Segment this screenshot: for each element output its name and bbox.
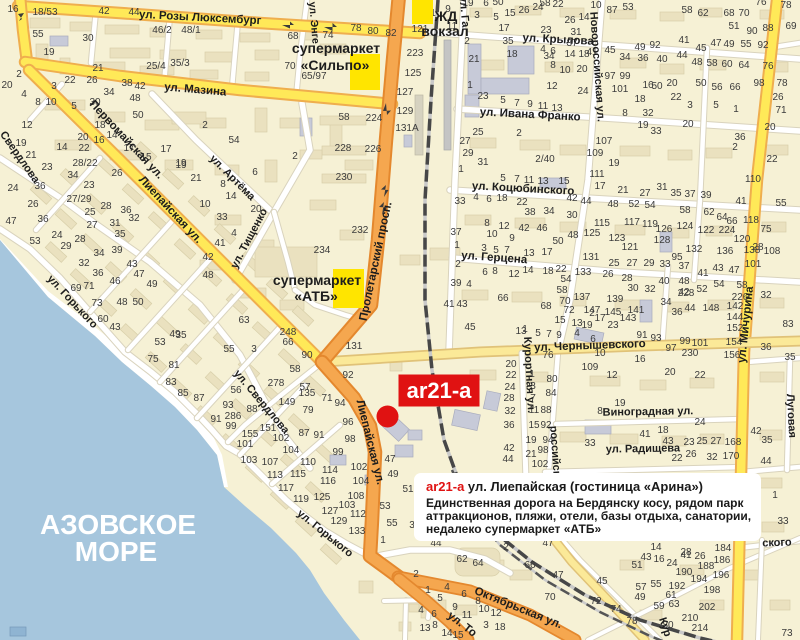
svg-text:85: 85 (177, 388, 189, 399)
svg-text:102: 102 (351, 462, 368, 473)
svg-text:15: 15 (528, 420, 540, 431)
svg-text:недалеко супермаркет «АТБ»: недалеко супермаркет «АТБ» (426, 522, 601, 536)
svg-text:88: 88 (540, 405, 552, 416)
svg-text:35: 35 (114, 229, 126, 240)
svg-text:17: 17 (160, 144, 172, 155)
svg-text:9: 9 (556, 330, 562, 341)
svg-text:62: 62 (456, 554, 468, 565)
svg-text:32: 32 (760, 290, 772, 301)
svg-text:9: 9 (509, 233, 515, 244)
svg-text:18: 18 (657, 425, 669, 436)
svg-text:15: 15 (504, 8, 516, 19)
svg-text:139: 139 (607, 294, 624, 305)
svg-text:19: 19 (608, 158, 620, 169)
svg-text:26: 26 (694, 551, 706, 562)
svg-text:126: 126 (656, 224, 673, 235)
svg-text:30: 30 (566, 210, 578, 221)
svg-text:58: 58 (539, 0, 551, 9)
svg-text:44: 44 (684, 303, 696, 314)
svg-text:103: 103 (241, 455, 258, 466)
svg-text:131А: 131А (395, 123, 419, 134)
svg-text:78: 78 (626, 616, 638, 627)
svg-text:31: 31 (109, 218, 121, 229)
svg-text:46: 46 (109, 276, 121, 287)
svg-text:7: 7 (546, 329, 552, 340)
svg-text:143: 143 (620, 313, 637, 324)
svg-text:99: 99 (225, 421, 237, 432)
svg-text:Луговая: Луговая (784, 393, 798, 438)
svg-text:58: 58 (556, 285, 568, 296)
svg-text:51: 51 (402, 484, 414, 495)
svg-text:25: 25 (608, 258, 620, 269)
svg-text:46: 46 (536, 223, 548, 234)
svg-text:13: 13 (515, 326, 527, 337)
svg-text:19: 19 (175, 158, 187, 169)
svg-text:104: 104 (283, 445, 300, 456)
svg-text:14: 14 (522, 265, 534, 276)
svg-text:23: 23 (683, 437, 695, 448)
svg-text:87: 87 (193, 393, 205, 404)
svg-text:13: 13 (419, 623, 431, 634)
svg-text:4: 4 (574, 328, 580, 339)
svg-text:108: 108 (764, 246, 781, 257)
svg-text:96: 96 (342, 417, 354, 428)
svg-text:19: 19 (581, 320, 593, 331)
svg-text:28: 28 (752, 242, 764, 253)
svg-text:16: 16 (653, 554, 665, 565)
svg-text:12: 12 (490, 608, 502, 619)
svg-text:38: 38 (121, 78, 133, 89)
svg-text:129: 129 (331, 516, 348, 527)
svg-text:28: 28 (74, 234, 86, 245)
svg-text:24: 24 (504, 382, 516, 393)
svg-text:98: 98 (344, 434, 356, 445)
svg-text:98: 98 (537, 445, 549, 456)
svg-text:8: 8 (432, 620, 438, 631)
svg-text:18: 18 (578, 49, 590, 60)
svg-text:27: 27 (86, 220, 98, 231)
svg-text:90: 90 (301, 350, 313, 361)
svg-text:43: 43 (456, 299, 468, 310)
svg-text:55: 55 (775, 198, 787, 209)
svg-text:32: 32 (706, 452, 718, 463)
svg-text:49: 49 (169, 329, 181, 340)
svg-text:ar21-a: ar21-a (407, 378, 473, 403)
svg-text:5: 5 (437, 593, 443, 604)
svg-text:25: 25 (696, 436, 708, 447)
svg-text:137: 137 (574, 292, 591, 303)
svg-text:41: 41 (697, 268, 709, 279)
svg-text:27: 27 (710, 436, 722, 447)
svg-text:70: 70 (284, 61, 296, 72)
svg-text:36: 36 (671, 307, 683, 318)
svg-text:34: 34 (543, 206, 555, 217)
svg-text:88: 88 (246, 404, 258, 415)
svg-text:10: 10 (559, 65, 571, 76)
svg-text:22: 22 (64, 75, 76, 86)
svg-text:21: 21 (468, 54, 480, 65)
svg-text:76: 76 (762, 61, 774, 72)
svg-text:36: 36 (34, 181, 46, 192)
svg-text:120: 120 (734, 234, 751, 245)
svg-text:83: 83 (782, 319, 794, 330)
svg-text:10: 10 (478, 604, 490, 615)
svg-text:22: 22 (670, 92, 682, 103)
svg-text:49: 49 (146, 279, 158, 290)
svg-text:14: 14 (56, 142, 68, 153)
svg-text:36: 36 (37, 214, 49, 225)
svg-text:80: 80 (546, 374, 558, 385)
svg-text:97: 97 (665, 343, 677, 354)
svg-text:75: 75 (760, 224, 772, 235)
svg-text:78: 78 (350, 23, 362, 34)
svg-text:27: 27 (639, 188, 651, 199)
svg-text:39: 39 (700, 190, 712, 201)
svg-text:8: 8 (484, 218, 490, 229)
svg-text:21: 21 (617, 185, 629, 196)
svg-text:3: 3 (51, 81, 57, 92)
svg-text:99: 99 (679, 336, 691, 347)
svg-text:186: 186 (714, 555, 731, 566)
svg-text:35: 35 (784, 352, 796, 363)
svg-text:84: 84 (545, 388, 557, 399)
svg-text:42: 42 (678, 287, 690, 298)
svg-text:8: 8 (492, 266, 498, 277)
svg-text:82: 82 (385, 28, 397, 39)
svg-text:74: 74 (610, 604, 622, 615)
svg-text:20: 20 (764, 122, 776, 133)
svg-text:31: 31 (656, 182, 668, 193)
svg-text:184: 184 (715, 543, 732, 554)
svg-text:131: 131 (346, 341, 363, 352)
svg-text:36: 36 (760, 342, 772, 353)
svg-text:136: 136 (717, 246, 734, 257)
svg-text:101: 101 (692, 338, 709, 349)
svg-text:22: 22 (671, 453, 683, 464)
svg-text:18/53: 18/53 (32, 7, 57, 18)
svg-text:115: 115 (290, 469, 306, 480)
svg-text:71: 71 (83, 281, 95, 292)
svg-text:ского: ского (762, 536, 792, 549)
svg-text:26: 26 (772, 92, 784, 103)
svg-text:6: 6 (483, 0, 489, 9)
svg-text:6: 6 (252, 167, 258, 178)
svg-text:30: 30 (627, 283, 639, 294)
svg-text:214: 214 (692, 623, 709, 634)
svg-text:26: 26 (518, 5, 530, 16)
svg-text:5: 5 (493, 12, 499, 23)
svg-text:25: 25 (84, 207, 96, 218)
svg-text:4: 4 (466, 279, 472, 290)
svg-text:МОРЕ: МОРЕ (75, 536, 157, 567)
svg-text:50: 50 (492, 0, 504, 8)
svg-text:45: 45 (695, 43, 707, 54)
svg-text:48: 48 (129, 93, 141, 104)
svg-text:48: 48 (691, 57, 703, 68)
svg-text:66: 66 (524, 560, 536, 571)
svg-text:42: 42 (134, 81, 146, 92)
svg-text:2: 2 (413, 569, 419, 580)
svg-text:125: 125 (314, 492, 331, 503)
svg-text:2: 2 (503, 542, 509, 553)
svg-text:26: 26 (685, 449, 697, 460)
svg-text:78: 78 (776, 78, 788, 89)
svg-text:76: 76 (755, 0, 767, 8)
svg-text:42: 42 (750, 426, 762, 437)
svg-text:53: 53 (29, 236, 41, 247)
svg-text:73: 73 (91, 298, 103, 309)
svg-text:20: 20 (1, 80, 13, 91)
svg-text:10: 10 (45, 97, 57, 108)
svg-text:226: 226 (365, 144, 382, 155)
svg-text:14: 14 (441, 628, 453, 639)
svg-text:2: 2 (516, 128, 522, 139)
svg-text:3: 3 (687, 100, 693, 111)
svg-text:27: 27 (459, 136, 471, 147)
svg-text:14: 14 (225, 191, 237, 202)
svg-text:20: 20 (666, 78, 678, 89)
svg-text:45: 45 (604, 45, 616, 56)
svg-text:18: 18 (634, 94, 646, 105)
svg-text:1: 1 (467, 80, 473, 91)
svg-text:70: 70 (544, 592, 556, 603)
svg-text:117: 117 (624, 217, 640, 228)
svg-text:49: 49 (387, 469, 399, 480)
svg-text:4: 4 (418, 605, 424, 616)
svg-text:17: 17 (541, 247, 553, 258)
svg-text:28/22: 28/22 (72, 158, 97, 169)
svg-text:109: 109 (582, 362, 599, 373)
svg-text:60: 60 (721, 59, 733, 70)
svg-text:83: 83 (165, 377, 177, 388)
svg-text:29: 29 (60, 241, 72, 252)
svg-text:132: 132 (686, 244, 703, 255)
svg-text:20: 20 (664, 367, 676, 378)
svg-text:48/1: 48/1 (181, 25, 201, 36)
svg-text:42: 42 (518, 223, 530, 234)
svg-text:93: 93 (222, 400, 234, 411)
svg-text:278: 278 (268, 378, 285, 389)
svg-text:196: 196 (713, 570, 730, 581)
svg-text:Виноградная ул.: Виноградная ул. (602, 405, 693, 419)
svg-text:101: 101 (237, 439, 254, 450)
svg-text:112: 112 (350, 509, 366, 520)
svg-text:54: 54 (644, 200, 656, 211)
svg-text:26: 26 (27, 199, 39, 210)
svg-text:91: 91 (210, 414, 222, 425)
svg-text:53: 53 (154, 337, 166, 348)
svg-text:2/40: 2/40 (535, 154, 555, 165)
svg-text:8: 8 (550, 60, 556, 71)
svg-text:228: 228 (335, 143, 352, 154)
svg-text:66: 66 (282, 337, 294, 348)
svg-text:54: 54 (228, 135, 240, 146)
svg-text:53: 53 (379, 501, 391, 512)
svg-text:55: 55 (740, 39, 752, 50)
svg-text:63: 63 (238, 315, 250, 326)
svg-text:55: 55 (650, 579, 662, 590)
svg-text:50: 50 (651, 81, 663, 92)
svg-text:101: 101 (745, 259, 762, 270)
svg-text:52: 52 (696, 284, 708, 295)
svg-text:28: 28 (100, 201, 112, 212)
svg-text:118: 118 (743, 215, 759, 226)
svg-text:32: 32 (504, 406, 516, 417)
svg-text:37: 37 (450, 227, 462, 238)
svg-text:1: 1 (772, 490, 778, 501)
svg-text:2: 2 (202, 120, 208, 131)
svg-text:117: 117 (278, 483, 294, 494)
svg-text:47: 47 (384, 454, 396, 465)
svg-text:224: 224 (366, 113, 383, 124)
svg-text:26: 26 (564, 15, 576, 26)
svg-text:232: 232 (352, 225, 369, 236)
svg-text:6: 6 (550, 46, 556, 57)
svg-text:36: 36 (503, 420, 515, 431)
svg-text:202: 202 (699, 602, 716, 613)
svg-text:4: 4 (21, 89, 27, 100)
svg-text:20: 20 (576, 64, 588, 75)
svg-text:24: 24 (694, 417, 706, 428)
svg-text:59: 59 (653, 601, 665, 612)
svg-text:8: 8 (220, 179, 226, 190)
svg-text:49: 49 (634, 592, 646, 603)
svg-text:55: 55 (223, 344, 235, 355)
svg-text:12: 12 (606, 370, 618, 381)
svg-text:40: 40 (656, 54, 668, 65)
svg-text:5: 5 (713, 100, 719, 111)
svg-text:26: 26 (86, 75, 98, 86)
svg-text:68: 68 (540, 301, 552, 312)
svg-text:72: 72 (590, 596, 602, 607)
svg-text:58: 58 (706, 58, 718, 69)
svg-text:34: 34 (93, 248, 105, 259)
svg-text:17: 17 (498, 23, 510, 34)
svg-text:2: 2 (16, 69, 22, 80)
svg-text:58: 58 (338, 112, 350, 123)
svg-text:4: 4 (231, 228, 237, 239)
svg-text:94: 94 (334, 398, 346, 409)
svg-text:1: 1 (380, 535, 386, 546)
svg-text:10: 10 (486, 229, 498, 240)
svg-text:47: 47 (728, 265, 740, 276)
svg-text:5: 5 (71, 101, 77, 112)
svg-text:90: 90 (746, 26, 758, 37)
svg-text:3: 3 (251, 344, 257, 355)
svg-text:вокзал: вокзал (421, 23, 468, 39)
svg-text:35: 35 (502, 36, 514, 47)
svg-text:33: 33 (650, 126, 662, 137)
svg-text:70: 70 (738, 8, 750, 19)
svg-text:43: 43 (109, 322, 121, 333)
svg-text:44: 44 (676, 50, 688, 61)
svg-text:27: 27 (626, 258, 638, 269)
svg-text:92: 92 (649, 40, 661, 51)
svg-text:24: 24 (7, 183, 19, 194)
svg-text:39: 39 (111, 245, 123, 256)
svg-text:23: 23 (607, 320, 619, 331)
svg-text:124: 124 (677, 221, 694, 232)
svg-text:56: 56 (230, 385, 242, 396)
svg-text:55: 55 (386, 518, 398, 529)
svg-text:6: 6 (486, 194, 492, 205)
svg-text:34: 34 (619, 52, 631, 63)
svg-text:16: 16 (7, 4, 19, 15)
svg-text:16: 16 (93, 135, 105, 146)
svg-text:75: 75 (147, 354, 159, 365)
svg-text:98: 98 (753, 78, 765, 89)
svg-text:2: 2 (589, 308, 595, 319)
svg-text:14: 14 (650, 542, 662, 553)
svg-text:87: 87 (298, 428, 310, 439)
svg-text:«АТБ»: «АТБ» (294, 288, 338, 304)
svg-text:113: 113 (267, 470, 283, 481)
svg-text:192: 192 (669, 581, 686, 592)
svg-text:23: 23 (83, 180, 95, 191)
svg-text:33: 33 (216, 212, 228, 223)
svg-text:12: 12 (21, 120, 33, 131)
svg-text:48: 48 (567, 230, 579, 241)
svg-text:39: 39 (450, 278, 462, 289)
svg-text:48: 48 (116, 297, 128, 308)
svg-text:37: 37 (684, 189, 696, 200)
svg-text:2: 2 (292, 151, 298, 162)
svg-text:17: 17 (594, 181, 606, 192)
svg-text:125: 125 (405, 68, 422, 79)
svg-text:42: 42 (202, 252, 214, 263)
svg-text:49: 49 (634, 42, 646, 53)
svg-text:25: 25 (472, 127, 484, 138)
svg-text:49: 49 (723, 39, 735, 50)
svg-text:62: 62 (697, 8, 709, 19)
svg-text:64: 64 (738, 60, 750, 71)
svg-text:41: 41 (443, 299, 455, 310)
svg-text:102: 102 (532, 459, 549, 470)
svg-text:46/2: 46/2 (152, 25, 172, 36)
svg-text:47: 47 (5, 216, 17, 227)
svg-text:12: 12 (498, 221, 510, 232)
svg-text:87: 87 (606, 5, 618, 16)
svg-text:22: 22 (505, 370, 517, 381)
svg-text:92: 92 (342, 370, 354, 381)
svg-text:17: 17 (594, 313, 606, 324)
svg-text:47: 47 (552, 570, 564, 581)
svg-text:41: 41 (678, 35, 690, 46)
svg-text:3: 3 (474, 10, 480, 21)
svg-text:26: 26 (602, 269, 614, 280)
svg-text:23: 23 (477, 91, 489, 102)
svg-text:19: 19 (43, 47, 55, 58)
svg-text:супермаркет: супермаркет (273, 272, 361, 288)
svg-text:69: 69 (785, 21, 797, 32)
svg-text:4: 4 (540, 44, 546, 55)
svg-text:101: 101 (612, 84, 629, 95)
svg-text:44: 44 (502, 454, 514, 465)
svg-text:20: 20 (505, 359, 517, 370)
svg-text:22: 22 (78, 143, 90, 154)
svg-text:1: 1 (458, 164, 464, 175)
svg-text:14: 14 (564, 49, 576, 60)
svg-text:21: 21 (92, 63, 104, 74)
svg-text:15: 15 (554, 315, 566, 326)
svg-text:47: 47 (710, 38, 722, 49)
svg-text:68: 68 (723, 8, 735, 19)
svg-text:128: 128 (654, 235, 671, 246)
svg-text:22: 22 (766, 154, 778, 165)
svg-text:аттракционов, пляжи, отели, ба: аттракционов, пляжи, отели, базы отдыха,… (426, 509, 751, 523)
svg-text:50: 50 (132, 110, 144, 121)
svg-text:10: 10 (199, 199, 211, 210)
